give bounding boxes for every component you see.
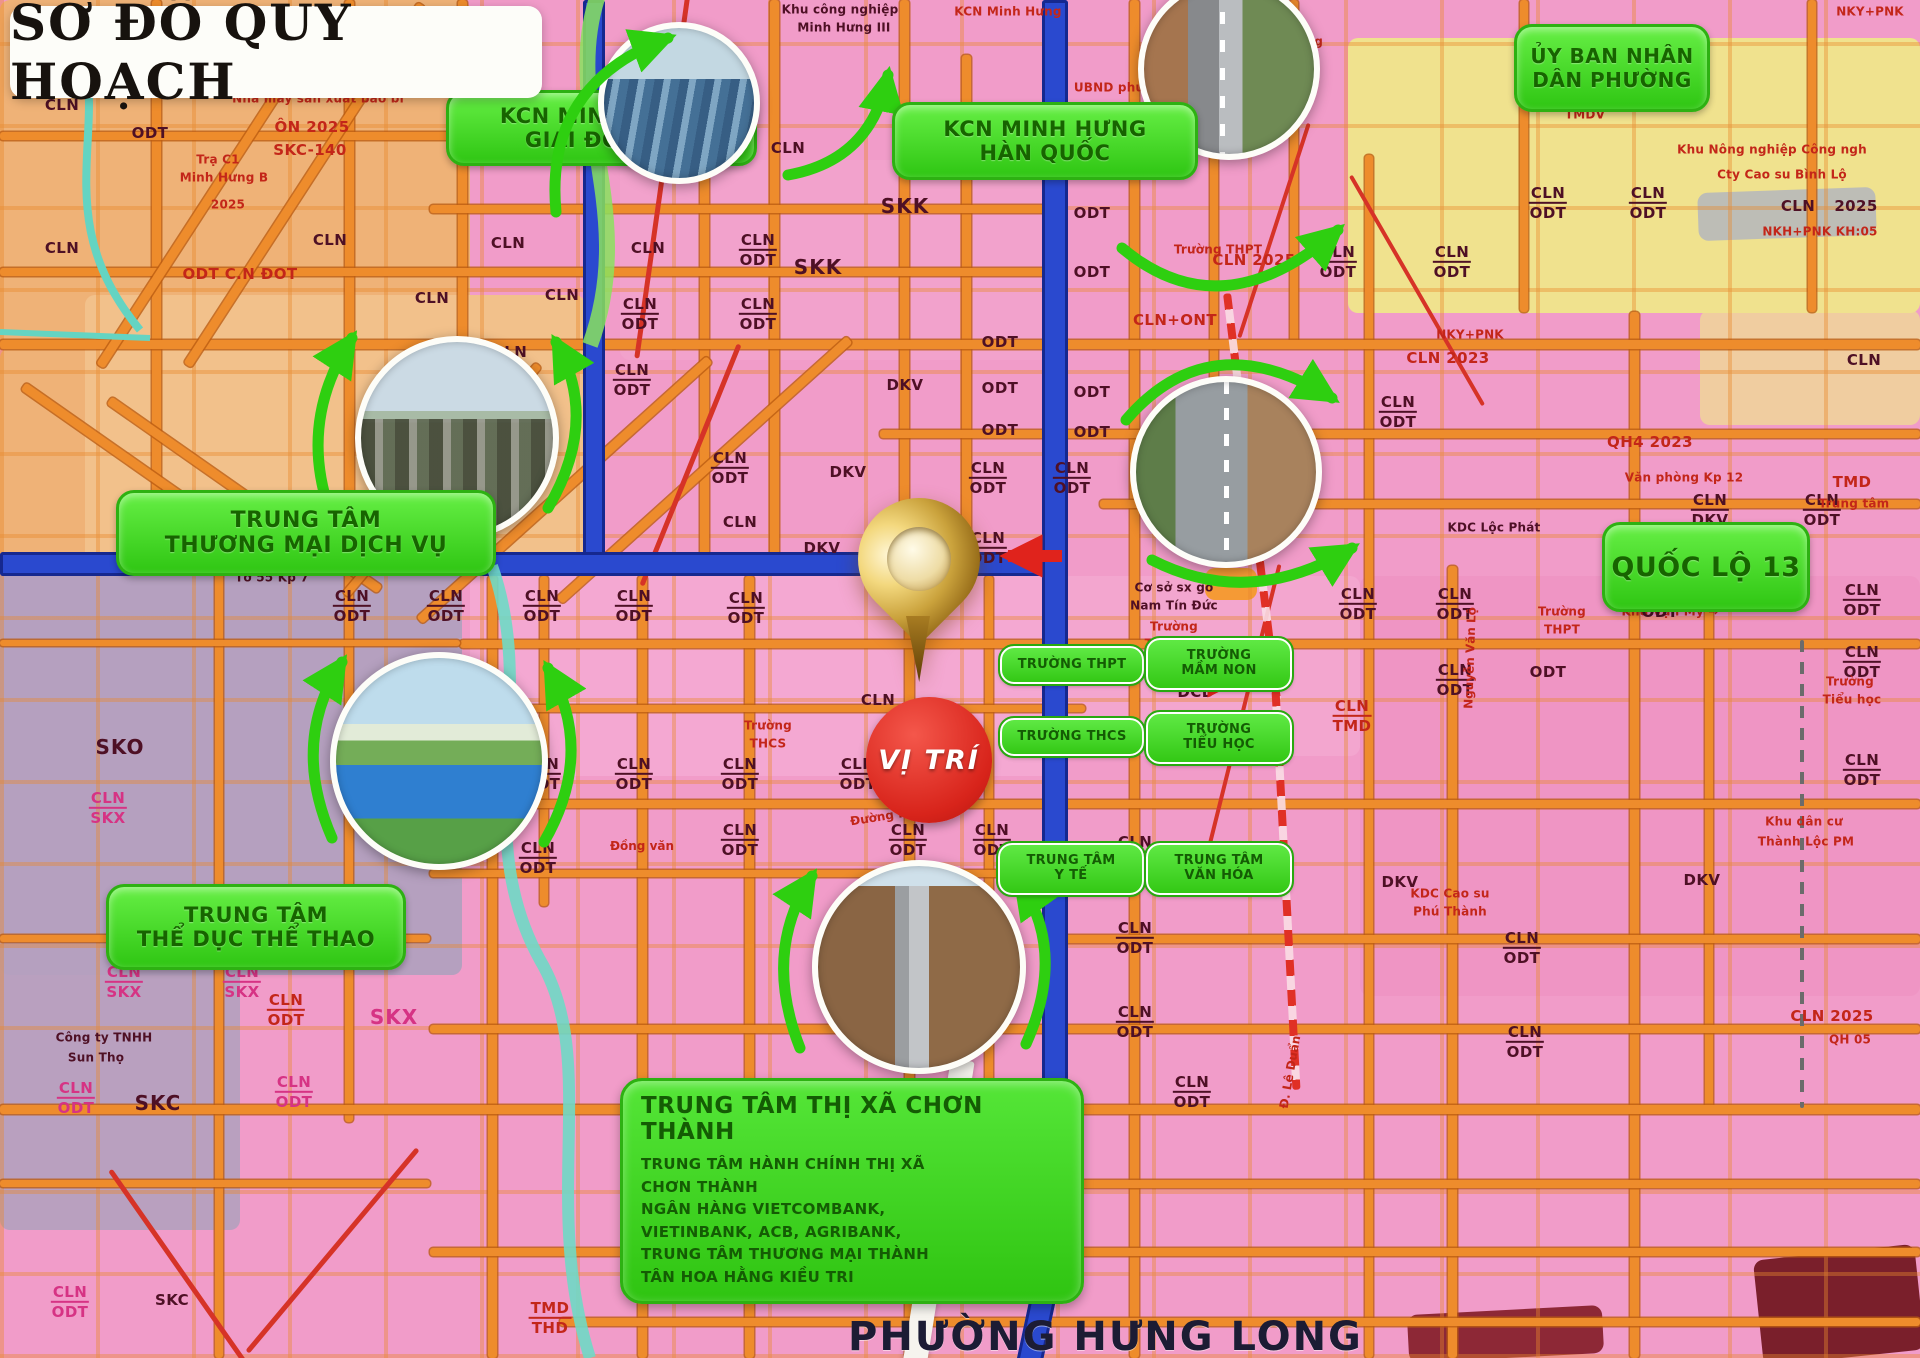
amenity-pill: TRUNG TÂMY TẾ <box>998 843 1144 895</box>
info-box-line: TRUNG TÂM THƯƠNG MẠI THÀNH <box>641 1243 1065 1266</box>
zone-label: CLNODT <box>739 232 777 268</box>
zone-label: Trường <box>1826 676 1874 689</box>
zone-label: THCS <box>750 738 787 751</box>
info-box-line: TÂN HOA HẰNG KIỀU TRI <box>641 1266 1065 1289</box>
zone-label: CLN <box>1781 198 1815 214</box>
zone-label: 2025 <box>211 199 245 212</box>
zone-label: KDC Cao su <box>1410 888 1489 901</box>
zone-label: CLNODT <box>1433 244 1471 280</box>
road-segment <box>1060 935 1920 943</box>
zone-label: CLNODT <box>1843 752 1881 788</box>
zone-label: Công ty TNHH <box>56 1032 153 1045</box>
zone-label: CLN <box>313 232 347 248</box>
road-segment <box>900 0 909 562</box>
zone-label: Khu dân cư <box>1765 816 1843 829</box>
zone-label: Minh Hưng III <box>797 22 890 35</box>
zone-label: SKC <box>155 1292 189 1308</box>
info-box-title: TRUNG TÂM THỊ XÃ CHƠN THÀNH <box>641 1093 1065 1145</box>
callout-uy-ban-nhan-dan-phuong: ỦY BAN NHÂNDÂN PHƯỜNG <box>1514 24 1710 112</box>
zone-label: ODT <box>1530 664 1567 680</box>
road-segment <box>460 705 1085 712</box>
zone-label: Tiểu học <box>1823 694 1882 707</box>
zone-label: Nam Tín Đức <box>1130 600 1218 613</box>
zone-label: SKC <box>135 1093 182 1115</box>
zone-label: ODT <box>982 380 1019 396</box>
zone-label: CLNODT <box>275 1074 313 1110</box>
info-box-line: TRUNG TÂM HÀNH CHÍNH THỊ XÃ <box>641 1153 1065 1176</box>
zone-label: CLNODT <box>739 296 777 332</box>
road-segment <box>0 640 460 646</box>
zone-label: SKX <box>370 1007 418 1029</box>
road-segment <box>1060 1180 1920 1188</box>
zone-label: CLNODT <box>427 588 465 624</box>
zone-label: CLNODT <box>1339 586 1377 622</box>
zone-label: CLN+ONT <box>1133 312 1217 328</box>
zone-label: Trạ C1 <box>196 154 239 167</box>
road-segment <box>1800 640 1804 1108</box>
zone-label: CLNODT <box>1503 930 1541 966</box>
zone-label: CLNODT <box>1116 920 1154 956</box>
highway-right-photo <box>1130 376 1322 568</box>
street-label: Đồng văn <box>610 839 674 853</box>
zone-label: 2025 <box>1834 198 1877 214</box>
zone-label: DKV <box>804 540 841 556</box>
zone-label: CLNTMD <box>1333 698 1372 734</box>
callout-quoc-lo-13: QUỐC LỘ 13 <box>1602 522 1810 612</box>
callout-kcn-minh-hung-han-quoc: KCN MINH HƯNGHÀN QUỐC <box>892 102 1198 180</box>
zone-label: Phú Thành <box>1413 906 1487 919</box>
planning-map: CLNODTNhà máy sản xuất bao bìÔN 2025SKC-… <box>0 0 1920 1358</box>
zone-label: CLNODT <box>711 450 749 486</box>
zone-label: CLN <box>545 287 579 303</box>
zone-label: Sun Thọ <box>68 1052 124 1065</box>
zone-label: DKV <box>887 377 924 393</box>
ward-name-banner: PHƯỜNG HƯNG LONG <box>848 1314 1363 1358</box>
map-title: SƠ ĐỒ QUY HOẠCH <box>10 0 542 111</box>
amenity-pill: TRUNG TÂMVĂN HÓA <box>1146 843 1292 895</box>
zone-label: KDC Lộc Phát <box>1448 522 1541 535</box>
zone-label: CLN <box>631 240 665 256</box>
zone-label: CLNODT <box>889 822 927 858</box>
zone-label: CLNODT <box>721 822 759 858</box>
zone-label: Minh Hưng B <box>180 172 269 185</box>
zone-label: Thành Lộc PM <box>1758 836 1854 849</box>
zone-label: CLN <box>415 290 449 306</box>
zone-label: CLN <box>491 235 525 251</box>
info-box-line: VIETINBANK, ACB, AGRIBANK, <box>641 1221 1065 1244</box>
town-center-info-box: TRUNG TÂM THỊ XÃ CHƠN THÀNH TRUNG TÂM HÀ… <box>620 1078 1084 1304</box>
zone-label: Cty Cao su Bình Lộ <box>1717 169 1847 182</box>
zone-label: NKY+PNK <box>1836 6 1904 19</box>
zone-label: Cơ sở sx gỗ <box>1135 582 1214 595</box>
zone-label: TMDTHD <box>529 1300 572 1336</box>
zone-label: CLNODT <box>1629 185 1667 221</box>
zone-label: CLNODT <box>721 756 759 792</box>
amenity-pill: TRƯỜNG THCS <box>1000 718 1144 756</box>
town-aerial-photo <box>812 860 1026 1074</box>
zone-label: CLNODT <box>1116 1004 1154 1040</box>
zone-label: CLNODT <box>1843 582 1881 618</box>
info-box-lines: TRUNG TÂM HÀNH CHÍNH THỊ XÃCHƠN THÀNHNGÂ… <box>641 1153 1065 1288</box>
zone-label: Trường <box>1150 621 1198 634</box>
info-box-line: CHƠN THÀNH <box>641 1176 1065 1199</box>
zone-label: CLNODT <box>1319 244 1357 280</box>
road-segment <box>1365 155 1373 1358</box>
zone-label: CLNODT <box>1173 1074 1211 1110</box>
zone-label: CLN 2025 <box>1212 252 1295 268</box>
zone-label: Trường <box>1538 606 1586 619</box>
zone-label: CLNODT <box>267 992 305 1028</box>
zone-label: SKK <box>794 257 842 279</box>
zone-label: CLNODT <box>1053 460 1091 496</box>
industrial-park-photo <box>598 22 760 184</box>
road-segment <box>0 132 465 140</box>
amenity-pill: TRƯỜNGTIỂU HỌC <box>1146 712 1292 764</box>
zone-label: Trường <box>744 720 792 733</box>
zone-label: KCN Minh Hưng <box>954 6 1061 19</box>
road-segment <box>1630 312 1639 1358</box>
zone-label: Văn phòng Kp 12 <box>1625 472 1744 485</box>
zone-label: CLNODT <box>1506 1024 1544 1060</box>
zone-label: CLNODT <box>727 590 765 626</box>
zone-label: ÔN 2025 <box>274 119 349 135</box>
amenity-pill: TRƯỜNG THPT <box>1000 646 1144 684</box>
zone-label: ODT <box>1074 264 1111 280</box>
zone-label: CLN <box>771 140 805 156</box>
gold-location-pin-icon <box>843 498 993 703</box>
road-segment <box>770 0 779 562</box>
zone-label: CLN <box>45 240 79 256</box>
zone-label: NKH+PNK KH:05 <box>1762 226 1877 239</box>
zone-label: CLNODT <box>615 756 653 792</box>
zone-label: CLN 2025 <box>1790 1008 1873 1024</box>
road-segment <box>880 430 1920 438</box>
zone-label: CLN <box>1847 352 1881 368</box>
zone-label: DKV <box>830 464 867 480</box>
zone-label: ODT <box>1074 205 1111 221</box>
zone-label: ODT C.N ĐOT <box>182 266 297 282</box>
zone-label: CLNODT <box>621 296 659 332</box>
zone-label: DKV <box>1684 872 1721 888</box>
zone-label: QH 05 <box>1829 1034 1871 1047</box>
zone-label: THPT <box>1544 624 1580 637</box>
zone-label: CLNODT <box>519 840 557 876</box>
zone-label: QH4 2023 <box>1607 434 1693 450</box>
zone-label: ODT <box>982 422 1019 438</box>
zone-label: NKY+PNK <box>1436 329 1504 342</box>
zone-label: TMD <box>1833 474 1872 490</box>
zone-label: ODT <box>1074 424 1111 440</box>
zone-label: CLNODT <box>615 588 653 624</box>
zone-label: CLNODT <box>1529 185 1567 221</box>
amenity-pill: TRƯỜNGMẦM NON <box>1146 638 1292 690</box>
zone-label: CLNODT <box>57 1080 95 1116</box>
zone-label: ODT <box>1074 384 1111 400</box>
zone-label: SKK <box>881 196 929 218</box>
map-title-box: SƠ ĐỒ QUY HOẠCH <box>10 6 542 98</box>
road-segment <box>345 562 353 1122</box>
zone-label: SKC-140 <box>273 142 346 158</box>
zone-label: SKO <box>95 737 144 759</box>
zone-label: CLNODT <box>1379 394 1417 430</box>
zone-label: ODT <box>982 334 1019 350</box>
zone-label: Khu công nghiệp <box>782 4 899 17</box>
zone-label: CLNSKX <box>89 790 127 826</box>
zone-label: Khu Nông nghiệp Công ngh <box>1677 144 1867 157</box>
zone-label: CLN 2023 <box>1406 350 1489 366</box>
zone-label: CLNODT <box>523 588 561 624</box>
zone-label: CLN <box>723 514 757 530</box>
road-segment <box>0 1180 430 1187</box>
zone-label: Trung tâm <box>1819 498 1890 511</box>
sports-field-photo <box>330 652 548 870</box>
zone-label: CLNODT <box>333 588 371 624</box>
road-segment <box>0 340 1920 349</box>
road-segment <box>460 800 1920 808</box>
zone-label: CLNODT <box>613 362 651 398</box>
callout-trung-tam-thuong-mai: TRUNG TÂMTHƯƠNG MẠI DỊCH VỤ <box>116 490 496 576</box>
zone-label: CLNODT <box>969 460 1007 496</box>
zone-label: ODT <box>132 125 169 141</box>
road-segment <box>430 205 1060 213</box>
callout-trung-tam-the-duc-the-thao: TRUNG TÂMTHỂ DỤC THỂ THAO <box>106 884 406 970</box>
location-marker: VỊ TRÍ <box>866 697 992 823</box>
info-box-line: NGÂN HÀNG VIETCOMBANK, <box>641 1198 1065 1221</box>
road-segment <box>430 1025 1920 1033</box>
zone-label: CLNODT <box>51 1284 89 1320</box>
